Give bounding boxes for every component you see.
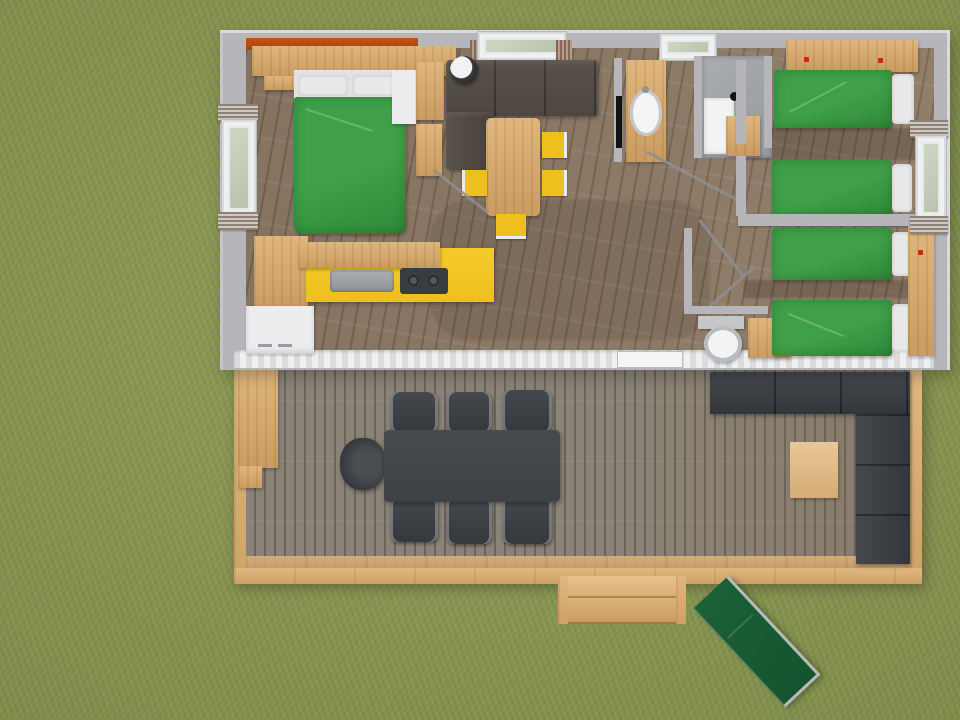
floor-shading-between-beds-2 (744, 280, 916, 298)
twin1-bed-b-pillow (892, 164, 912, 212)
twin2-bed-b (772, 300, 892, 356)
deck-chair-5 (446, 498, 492, 544)
wall-wc-top (684, 306, 768, 314)
deck-inner-ledger (246, 556, 910, 568)
twin1-bed-a-pillow (892, 74, 914, 124)
bathroom-vanity (626, 60, 666, 162)
dining-chair-3 (462, 170, 487, 196)
deck-chair-2 (446, 392, 492, 432)
sun-lounger (693, 576, 820, 707)
dining-chair-2 (542, 170, 567, 196)
appliance-vent-2 (278, 344, 292, 347)
kitchen-sink (330, 270, 394, 292)
dining-table (486, 118, 540, 216)
master-wardrobe-upper (416, 62, 444, 120)
kitchen-hob (400, 268, 448, 294)
deck-armchair (340, 438, 386, 490)
deck-dining-table (384, 430, 560, 502)
right-window (916, 136, 946, 220)
wall-tv (616, 96, 622, 148)
dining-chair-1 (542, 132, 567, 158)
step-bottom (568, 598, 676, 624)
deck-frame-right (910, 368, 922, 584)
deck-corner-sofa-top (710, 372, 910, 414)
white-appliance (246, 306, 314, 354)
bed-crease-1 (789, 81, 846, 113)
deck-chair-3 (502, 390, 552, 432)
dining-chair-4 (496, 214, 526, 239)
deck-corner-sofa-right (856, 414, 910, 564)
deck-storage-lid (238, 466, 262, 488)
kitchen-upper-cabinets (298, 242, 440, 268)
left-window (222, 120, 256, 216)
wall-shower-left (694, 56, 702, 158)
left-window-pane (228, 126, 250, 210)
step-top (568, 576, 676, 598)
vanity-basin (630, 90, 662, 136)
appliance-vent-1 (258, 344, 272, 347)
shelf-red-knob-2 (878, 58, 883, 63)
bed-crease-2 (788, 313, 844, 337)
wall-wc-left (684, 228, 692, 308)
living-window-pane (484, 38, 560, 54)
master-white-dresser (392, 70, 416, 124)
entry-door-panel (618, 352, 682, 367)
floorplan-scene (0, 0, 960, 720)
deck-storage-box (238, 368, 278, 468)
hob-burner-1 (408, 275, 419, 286)
toilet-bowl (704, 326, 742, 362)
living-front-window (478, 32, 566, 60)
deck-chair-4 (390, 498, 438, 542)
sun-lounger-area (700, 578, 812, 698)
vanity-faucet (642, 86, 649, 93)
master-bedside-shelf (264, 76, 294, 90)
left-window-shutter-bottom (218, 212, 258, 230)
lounger-fold (727, 614, 753, 639)
twin2-bed-a (772, 228, 892, 280)
wall-hall-2 (736, 156, 746, 216)
shelf-red-knob-1 (804, 57, 809, 62)
right-window-shutter-bottom (910, 216, 948, 234)
hob-burner-2 (428, 275, 439, 286)
deck-chair-6 (502, 496, 552, 544)
deck-chair-1 (390, 392, 438, 432)
twin1-bed-b (772, 160, 892, 216)
right-window-pane (922, 142, 940, 214)
wall-hall-1 (736, 60, 746, 144)
steps-stringer-left (558, 576, 568, 624)
duvet-crease (305, 108, 372, 132)
bathroom-window-pane (666, 40, 710, 54)
green-duvet (294, 97, 406, 234)
wall-shower-right (764, 56, 772, 148)
steps-stringer-right (676, 576, 686, 624)
master-double-bed (294, 70, 406, 234)
round-planter (450, 56, 478, 84)
twin1-overhead-shelf (786, 40, 918, 72)
pillow-left (298, 75, 348, 96)
master-wardrobe-lower (416, 124, 442, 176)
twin1-bed-a (774, 70, 892, 128)
wardrobe-red-knob (918, 250, 923, 255)
twin2-wardrobe (908, 226, 934, 356)
deck-coffee-table (790, 442, 838, 498)
partition-right-bedrooms (738, 214, 918, 226)
